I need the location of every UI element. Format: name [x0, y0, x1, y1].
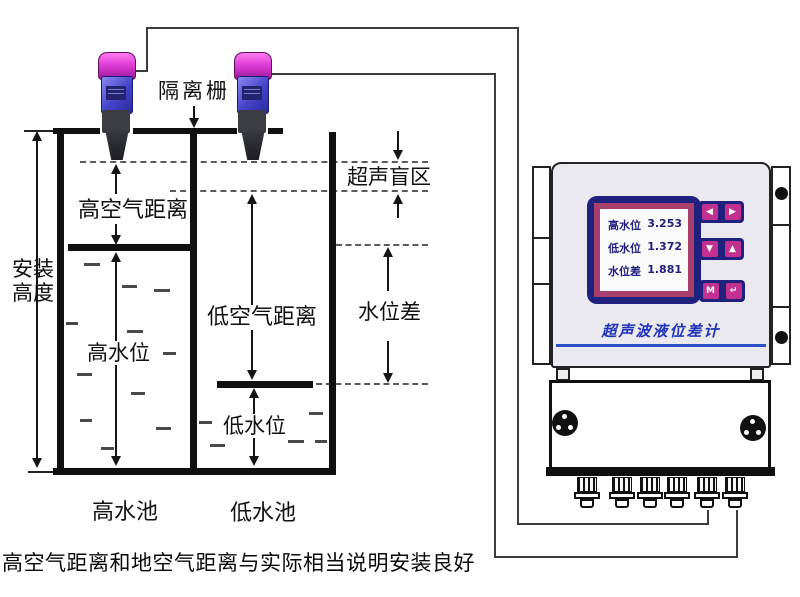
screen-row-label: 低水位 — [608, 240, 641, 256]
arrowhead-up — [111, 252, 121, 262]
key-down-arrow-button[interactable]: ▼ — [702, 241, 718, 257]
arrow-level-diff-down — [387, 341, 389, 377]
arrow-low-air — [251, 198, 253, 374]
dashed-line-blind-zone-bottom — [170, 190, 428, 192]
cable-gland — [640, 477, 660, 509]
arrowhead-up — [111, 164, 121, 174]
wire-segment — [146, 27, 519, 29]
cable-gland — [697, 477, 717, 509]
controller-hinge-strip — [532, 166, 551, 365]
label-low-air-distance: 低空气距离 — [205, 305, 319, 330]
arrowhead-up — [383, 247, 393, 257]
water-dash — [80, 419, 92, 422]
screen-row-label: 高水位 — [608, 217, 641, 233]
mount-divider — [771, 224, 791, 226]
water-surface-low — [217, 381, 313, 388]
screw — [775, 331, 788, 344]
terminal-box — [549, 380, 771, 472]
key-enter-button[interactable]: ↵ — [726, 283, 742, 299]
label-blind-zone: 超声盲区 — [347, 165, 431, 189]
arrowhead-down — [249, 456, 259, 466]
keypad-row-1: ◀ ▶ — [698, 201, 744, 223]
screen-row-value: 3.253 — [647, 217, 682, 233]
cable-gland — [612, 477, 632, 509]
screen-row-low-level: 低水位 1.372 — [608, 240, 682, 256]
water-dash — [199, 421, 212, 424]
arrowhead-down — [189, 118, 199, 128]
arrowhead-down — [393, 150, 403, 160]
label-high-air-distance: 高空气距离 — [76, 198, 190, 223]
cable-gland — [725, 477, 745, 509]
water-dash — [315, 440, 327, 443]
wire-segment — [494, 73, 496, 558]
water-dash — [84, 263, 100, 266]
sensor-mount — [238, 110, 266, 133]
tank-top-edge — [268, 128, 283, 134]
sensor-transducer-cone — [240, 132, 266, 160]
wire-segment — [494, 556, 738, 558]
water-dash — [163, 352, 176, 355]
screw — [775, 187, 788, 200]
sensor-mount — [102, 110, 130, 133]
sensor-label — [106, 86, 126, 100]
keypad-row-3: M ↵ — [699, 280, 745, 302]
label-isolation-grid: 隔离栅 — [158, 79, 230, 103]
screw — [552, 410, 578, 436]
arrow-level-diff-up — [387, 251, 389, 291]
water-dash — [127, 330, 143, 333]
label-install-height-line1: 安装 — [12, 257, 54, 281]
tank-bottom — [53, 468, 336, 475]
label-low-water-level: 低水位 — [221, 414, 288, 438]
label-level-difference: 水位差 — [358, 300, 421, 324]
label-install-height-line2: 高度 — [12, 281, 54, 305]
screen-row-level-diff: 水位差 1.881 — [608, 263, 682, 279]
water-dash — [122, 285, 137, 288]
label-high-tank: 高水池 — [92, 500, 158, 525]
hinge-divider — [532, 283, 551, 285]
key-menu-button[interactable]: M — [703, 283, 719, 299]
screen-row-value: 1.372 — [647, 240, 682, 256]
caption: 高空气距离和地空气距离与实际相当说明安装良好 — [2, 547, 475, 577]
arrowhead-up — [247, 194, 257, 204]
accent-line — [556, 344, 766, 347]
cable-gland — [577, 477, 597, 509]
water-dash — [309, 412, 323, 415]
wire-segment — [736, 510, 738, 558]
dashed-line-blind-zone-top — [80, 161, 428, 163]
screw — [740, 415, 766, 441]
key-right-arrow-button[interactable]: ▶ — [725, 204, 741, 220]
lcd-screen: 高水位 3.253 低水位 1.372 水位差 1.881 — [600, 209, 688, 291]
mount-divider — [771, 306, 791, 308]
water-dash — [131, 392, 145, 395]
dashed-line-high-level-ext-right — [336, 244, 428, 246]
keypad-row-2: ▼ ▲ — [698, 238, 744, 260]
tank-wall-middle — [190, 128, 197, 475]
screen-row-label: 水位差 — [608, 263, 641, 279]
tank-top-edge — [133, 128, 237, 134]
arrowhead-down — [32, 458, 42, 468]
tank-wall-right — [329, 132, 336, 475]
arrowhead-up — [249, 388, 259, 398]
key-left-arrow-button[interactable]: ◀ — [702, 204, 718, 220]
water-dash — [156, 427, 171, 430]
screenshot-root: 隔离栅 高空气距离 低空气距离 高水位 低水位 超声盲区 水位差 安装 高度 高… — [0, 0, 800, 597]
arrowhead-down — [111, 456, 121, 466]
terminal-box-bottom-bar — [546, 467, 775, 476]
water-surface-high — [68, 244, 196, 251]
label-high-water-level: 高水位 — [85, 341, 152, 365]
wire-segment — [146, 27, 148, 72]
sensor-label — [242, 86, 262, 100]
device-title: 超声波液位差计 — [553, 320, 769, 341]
water-dash — [210, 444, 225, 447]
water-dash — [66, 322, 78, 325]
wire-segment — [517, 27, 519, 525]
screen-row-value: 1.881 — [647, 263, 682, 279]
water-dash — [101, 447, 114, 450]
water-dash — [288, 440, 304, 443]
arrowhead-down — [247, 370, 257, 380]
label-install-height: 安装 高度 — [12, 257, 54, 305]
hinge-divider — [532, 237, 551, 239]
label-low-tank: 低水池 — [230, 501, 296, 526]
wire-segment — [268, 73, 496, 75]
tank-wall-left — [57, 128, 64, 475]
water-dash — [77, 373, 92, 376]
water-dash — [154, 289, 170, 292]
cable-gland — [667, 477, 687, 509]
arrowhead-down — [383, 373, 393, 383]
wire-segment — [517, 523, 709, 525]
wire-segment — [707, 510, 709, 525]
arrowhead-up — [393, 194, 403, 204]
key-up-arrow-button[interactable]: ▲ — [725, 241, 741, 257]
arrowhead-up — [32, 131, 42, 141]
sensor-transducer-cone — [104, 132, 130, 160]
screen-row-high-level: 高水位 3.253 — [608, 217, 682, 233]
